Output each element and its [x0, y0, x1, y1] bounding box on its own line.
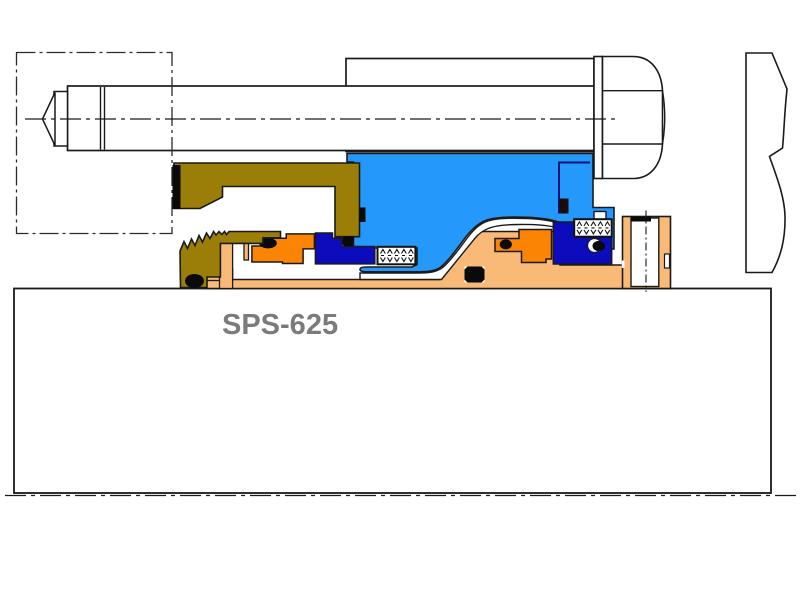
svg-text:SPS-625: SPS-625 [222, 309, 338, 341]
